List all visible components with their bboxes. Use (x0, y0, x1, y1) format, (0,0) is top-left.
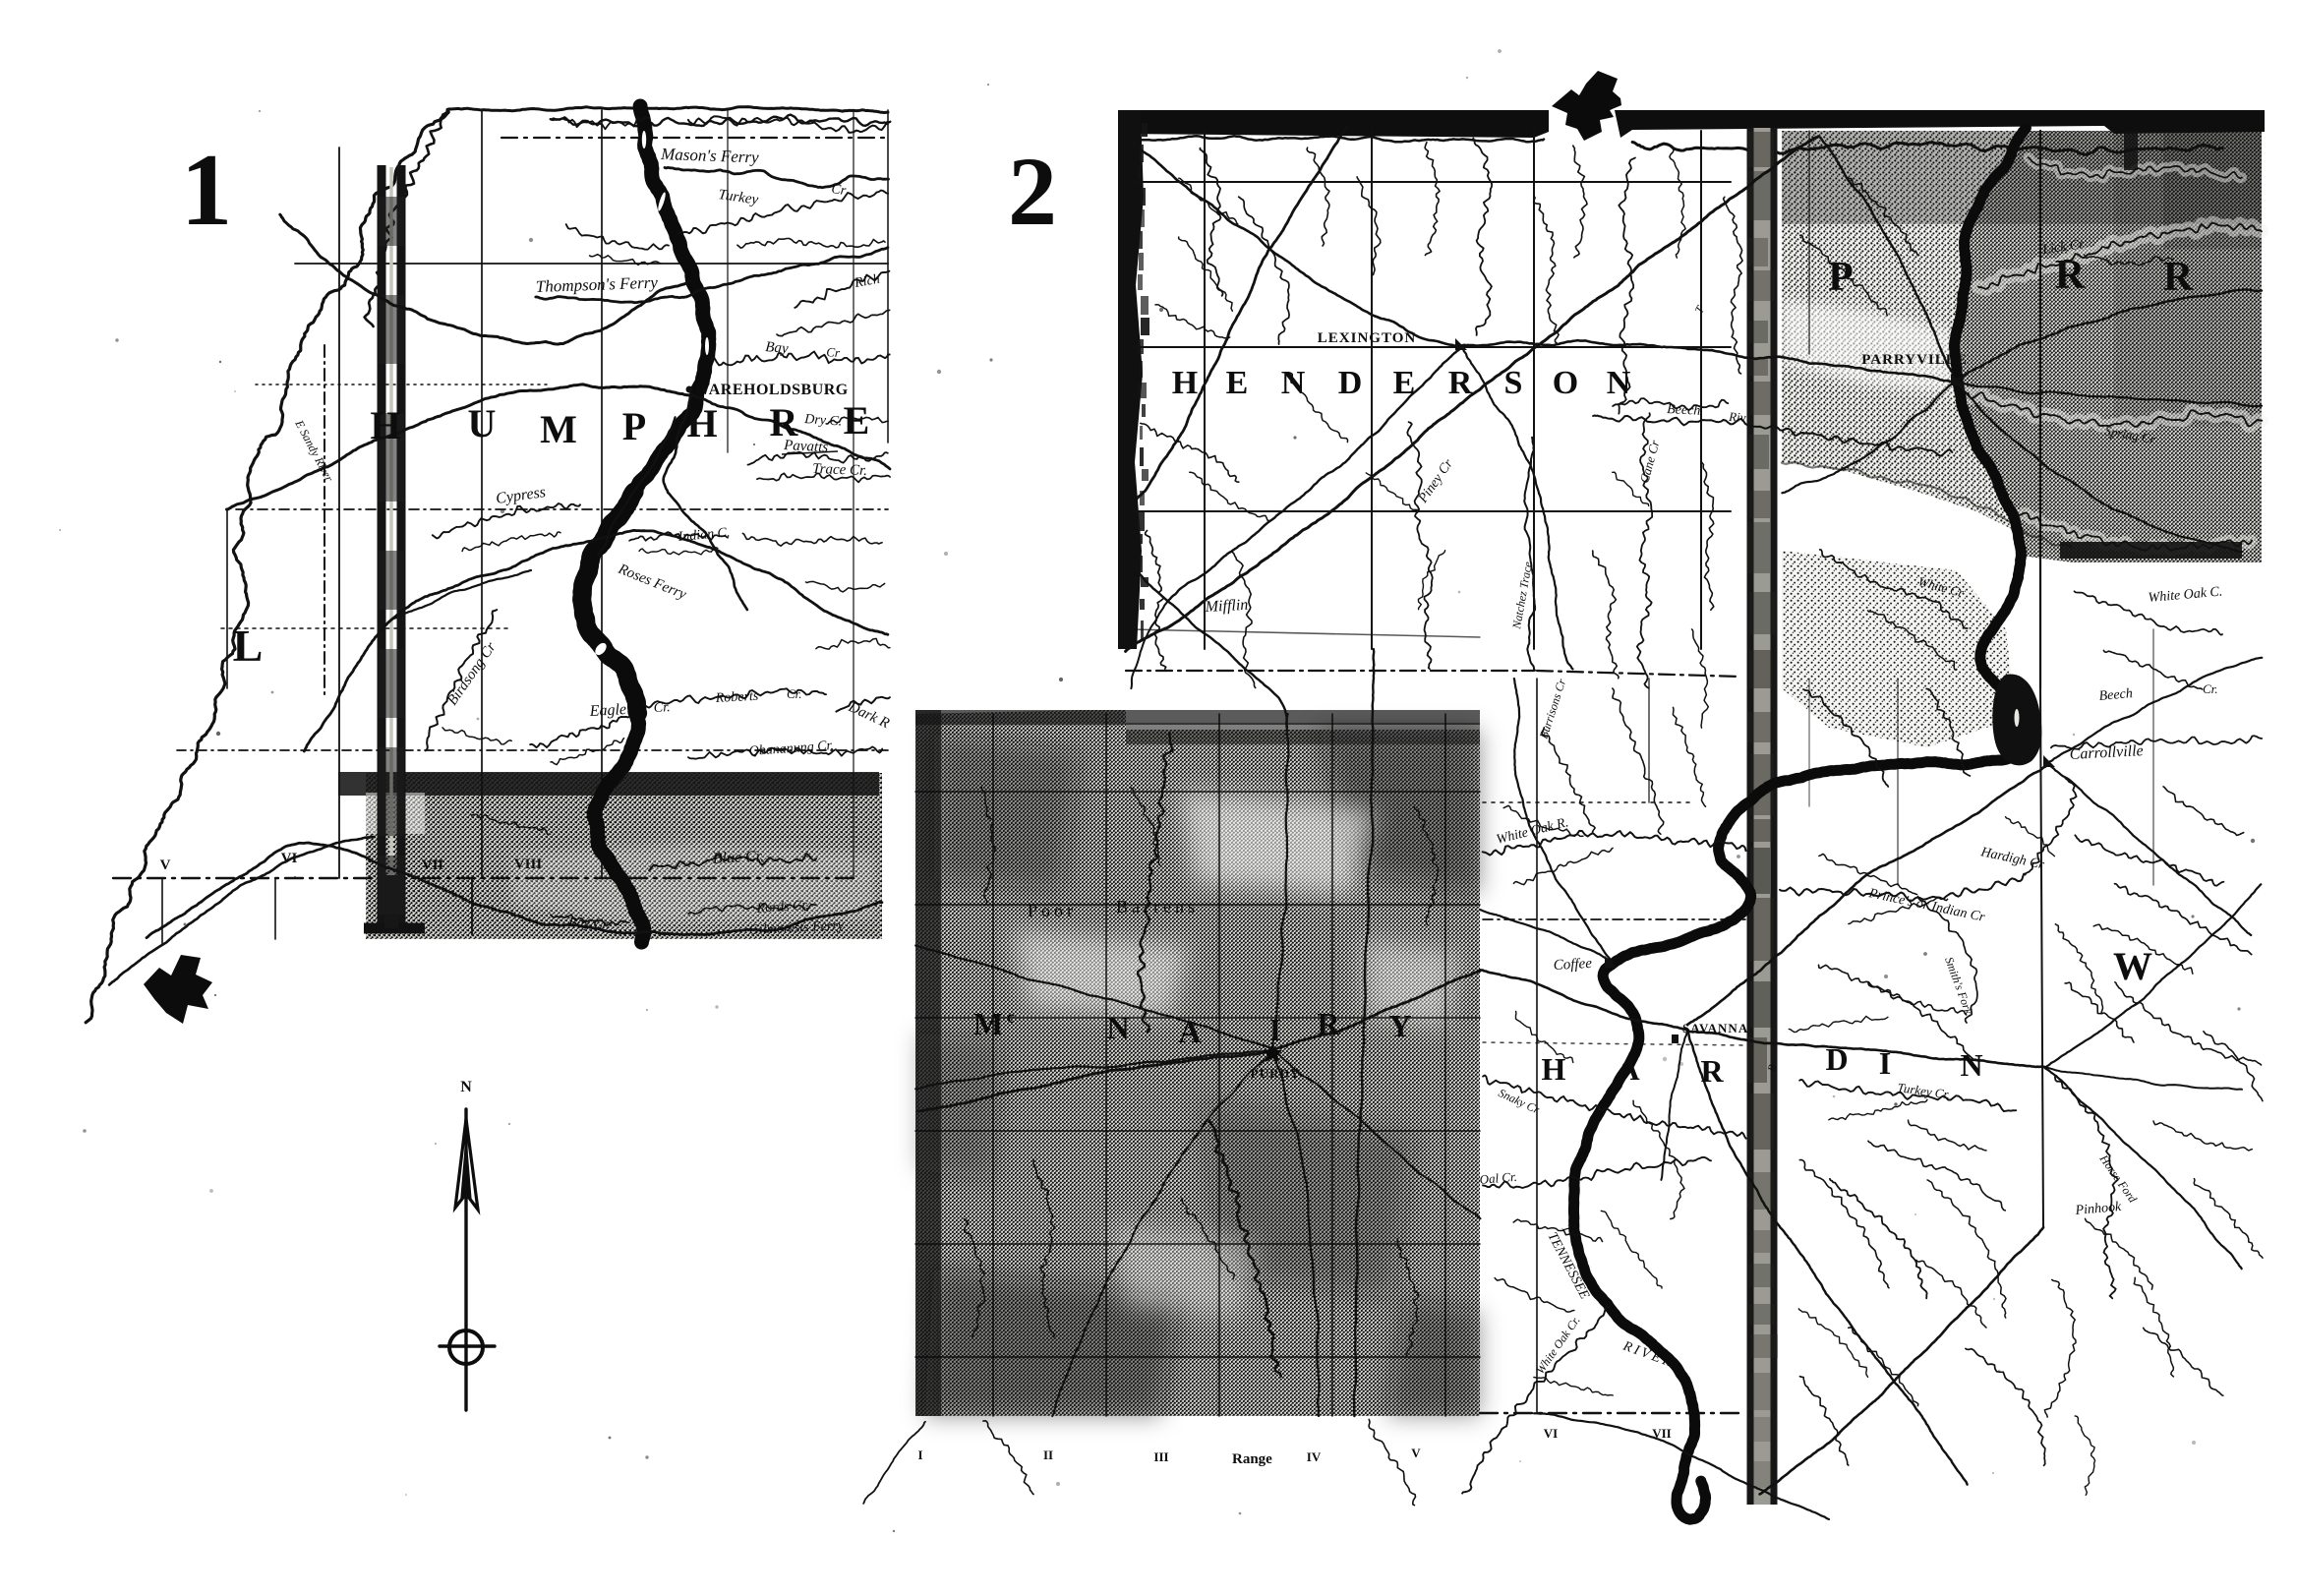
svg-text:M: M (540, 407, 577, 451)
svg-text:Roberts: Roberts (714, 689, 759, 706)
svg-text:Y: Y (1388, 1008, 1411, 1043)
svg-text:H: H (1542, 1051, 1566, 1087)
svg-text:H: H (686, 401, 717, 445)
svg-text:IV: IV (1307, 1449, 1322, 1464)
svg-text:Cr.: Cr. (787, 686, 802, 701)
svg-text:Cr.: Cr. (653, 700, 670, 716)
svg-text:R: R (2163, 255, 2194, 300)
svg-text:L: L (233, 621, 264, 671)
svg-text:P: P (622, 404, 646, 448)
svg-text:E: E (844, 398, 870, 443)
svg-text:D: D (1338, 365, 1363, 401)
svg-text:N: N (1106, 1010, 1129, 1045)
svg-text:Bay Cr.: Bay Cr. (568, 916, 611, 932)
svg-text:Cr.: Cr. (2203, 681, 2218, 696)
svg-text:Riv: Riv (1728, 409, 1746, 425)
svg-text:Cr: Cr (830, 182, 847, 199)
svg-text:VII: VII (422, 857, 444, 873)
svg-text:VII: VII (1652, 1426, 1672, 1441)
svg-text:P: P (1828, 255, 1854, 300)
svg-text:2: 2 (1008, 137, 1057, 246)
svg-text:N: N (1281, 365, 1306, 401)
svg-text:PURDY: PURDY (1251, 1066, 1301, 1081)
svg-text:III: III (1153, 1449, 1168, 1464)
svg-text:H: H (370, 403, 400, 447)
svg-text:E: E (1393, 365, 1416, 401)
svg-text:Trace Cr.: Trace Cr. (812, 461, 867, 479)
svg-text:M: M (973, 1006, 1003, 1041)
svg-text:D: D (1825, 1041, 1848, 1077)
svg-text:Barrens: Barrens (1116, 897, 1199, 916)
svg-text:S: S (1504, 365, 1523, 401)
svg-text:V: V (160, 857, 171, 873)
svg-text:N: N (460, 1079, 472, 1095)
svg-text:R: R (770, 400, 799, 444)
svg-text:LEXINGTON: LEXINGTON (1318, 330, 1416, 346)
svg-text:N: N (1960, 1047, 1982, 1083)
svg-text:Eagle: Eagle (588, 701, 626, 720)
svg-text:Mifflin: Mifflin (1204, 597, 1248, 616)
svg-text:Beech: Beech (1667, 402, 1701, 419)
svg-text:R: R (1317, 1006, 1340, 1041)
svg-text:Beech: Beech (2098, 686, 2133, 704)
svg-text:VIII: VIII (514, 857, 543, 872)
svg-text:Poor: Poor (1028, 901, 1077, 920)
svg-text:E: E (1226, 365, 1249, 401)
svg-text:SAVANNA: SAVANNA (1682, 1021, 1748, 1035)
svg-text:W: W (2113, 944, 2152, 988)
svg-text:Coffee: Coffee (1553, 956, 1592, 974)
svg-text:VI: VI (281, 851, 298, 866)
svg-text:H: H (1172, 365, 1198, 401)
svg-text:Dry C.: Dry C. (803, 412, 843, 430)
svg-text:Cr: Cr (826, 344, 842, 360)
svg-text:c: c (1007, 1007, 1015, 1027)
svg-text:Blue Cr.: Blue Cr. (712, 848, 764, 867)
svg-text:I: I (1879, 1045, 1891, 1081)
svg-text:Range: Range (1232, 1451, 1272, 1467)
svg-text:A: A (1617, 1051, 1639, 1087)
svg-text:V: V (1411, 1446, 1421, 1460)
svg-text:U: U (468, 401, 497, 445)
svg-text:WAREHOLDSBURG: WAREHOLDSBURG (694, 382, 849, 398)
svg-text:I: I (917, 1448, 922, 1462)
svg-text:II: II (1043, 1448, 1053, 1462)
svg-text:N: N (1607, 365, 1631, 401)
svg-text:Bay: Bay (765, 339, 790, 357)
svg-text:A: A (1178, 1014, 1201, 1049)
svg-text:1: 1 (181, 132, 233, 247)
svg-text:Mason's Ferry: Mason's Ferry (660, 145, 760, 167)
svg-text:VI: VI (1544, 1426, 1558, 1441)
svg-text:R: R (1448, 365, 1473, 401)
svg-text:R: R (1700, 1053, 1724, 1089)
svg-text:PARRYVILLE: PARRYVILLE (1861, 352, 1968, 368)
svg-text:O: O (1553, 365, 1578, 401)
svg-text:I: I (1269, 1012, 1281, 1047)
